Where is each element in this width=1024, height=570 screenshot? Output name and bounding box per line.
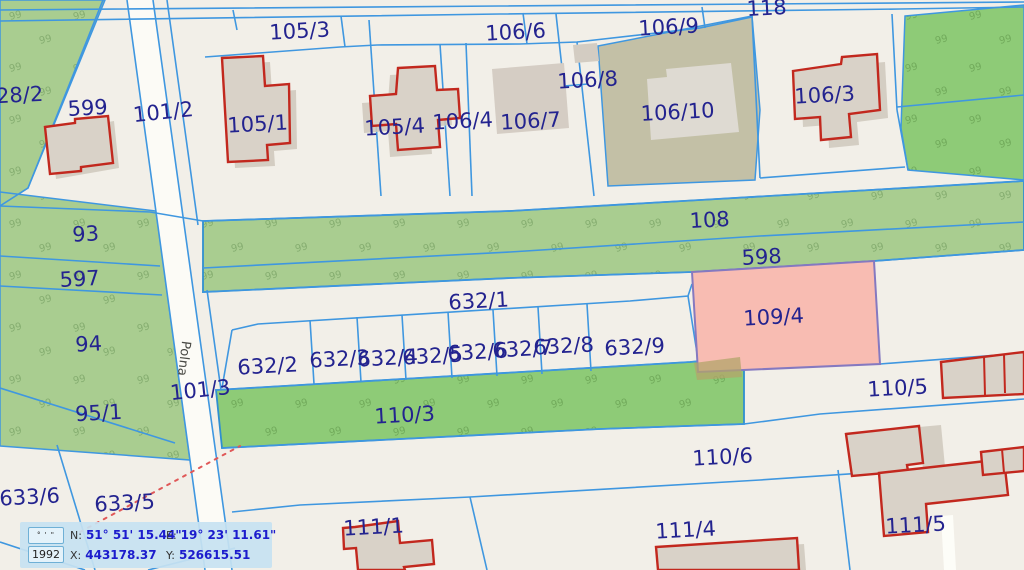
- parcel-label-110-3: 110/3: [374, 401, 436, 428]
- map-viewport[interactable]: 99 99 99 99: [0, 0, 1024, 570]
- parcel-label-599: 599: [67, 95, 108, 121]
- x-value: 443178.37: [85, 548, 156, 562]
- green-area-top-right: [901, 5, 1024, 180]
- parcel-label-108: 108: [689, 207, 730, 233]
- crs-1992-button[interactable]: 1992: [28, 546, 64, 563]
- parcel-label-111-5: 111/5: [885, 511, 947, 538]
- parcel-label-106-4: 106/4: [432, 107, 494, 134]
- parcel-label-95-1: 95/1: [74, 400, 122, 426]
- coordinate-format-buttons: ° ' " 1992: [28, 527, 64, 563]
- parcel-label-111-1: 111/1: [343, 513, 405, 540]
- parcel-label-109-4: 109/4: [743, 303, 805, 330]
- dms-format-button[interactable]: ° ' ": [28, 527, 64, 544]
- parcel-label-110-5: 110/5: [867, 374, 929, 401]
- parcel-label-106-9: 106/9: [638, 13, 700, 40]
- parcel-label-105-3: 105/3: [269, 17, 331, 44]
- building-106-8: [573, 43, 599, 63]
- parcel-label-111-4: 111/4: [655, 516, 717, 543]
- cadastral-map[interactable]: 99 99 99 99: [0, 0, 1024, 570]
- latitude-readout: N:51° 51' 15.44": [70, 528, 166, 542]
- parcel-label-105-4: 105/4: [364, 113, 426, 140]
- parcel-label-118: 118: [746, 0, 787, 21]
- parcel-label-632-2: 632/2: [237, 352, 299, 379]
- parcel-label-632-9: 632/9: [604, 333, 666, 360]
- x-label: X:: [70, 549, 81, 562]
- parcel-label-598: 598: [741, 244, 782, 270]
- parcel-label-597: 597: [59, 266, 100, 292]
- parcel-label-632-8: 632/8: [533, 332, 595, 359]
- longitude-readout: E:19° 23' 11.61": [166, 528, 276, 542]
- x-coordinate-readout: X:443178.37: [70, 548, 166, 562]
- parcel-label-94: 94: [75, 331, 103, 356]
- parcel-label-110-6: 110/6: [692, 443, 754, 470]
- parcel-label-28-2: 28/2: [0, 82, 44, 108]
- longitude-value: 19° 23' 11.61": [181, 528, 277, 542]
- parcel-label-93: 93: [72, 221, 100, 246]
- building-599: [45, 116, 113, 174]
- parcel-label-633-5: 633/5: [94, 489, 156, 516]
- y-label: Y:: [166, 549, 175, 562]
- parcel-label-106-6: 106/6: [485, 18, 547, 45]
- longitude-label: E:: [166, 529, 177, 542]
- parcel-label-105-1: 105/1: [227, 110, 289, 137]
- coordinate-values: N:51° 51' 15.44" E:19° 23' 11.61" X:4431…: [70, 525, 276, 565]
- y-coordinate-readout: Y:526615.51: [166, 548, 276, 562]
- parcel-label-106-3: 106/3: [794, 81, 856, 108]
- parcel-label-632-1: 632/1: [448, 287, 510, 314]
- parcel-label-106-10: 106/10: [640, 98, 715, 126]
- coordinate-readout: ° ' " 1992 N:51° 51' 15.44" E:19° 23' 11…: [20, 522, 272, 568]
- parcel-label-106-7: 106/7: [500, 107, 562, 134]
- parcel-label-633-6: 633/6: [0, 483, 60, 510]
- y-value: 526615.51: [179, 548, 250, 562]
- parcel-label-106-8: 106/8: [557, 66, 619, 93]
- latitude-label: N:: [70, 529, 82, 542]
